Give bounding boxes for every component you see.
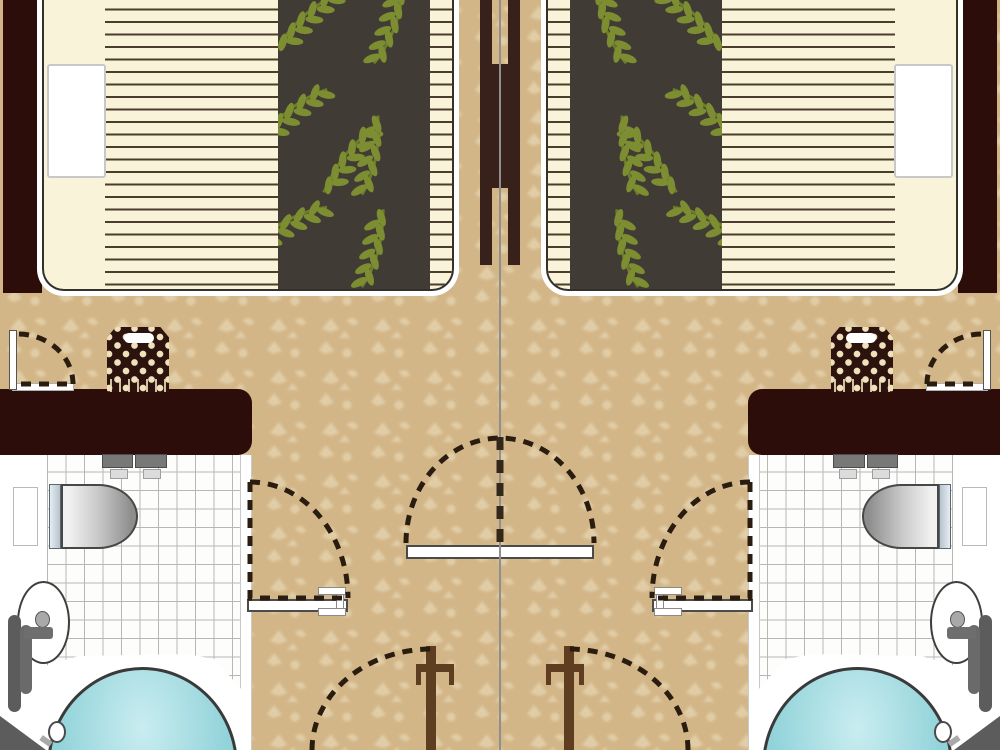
corner-shelf	[0, 716, 46, 750]
coat-stand-arm	[416, 664, 454, 672]
door-handle	[654, 608, 682, 616]
coat-stand-hook	[449, 672, 454, 685]
door-handle	[318, 608, 346, 616]
pillow	[47, 64, 106, 178]
vanity-fixture	[867, 454, 898, 468]
closet-door-leaf	[983, 330, 991, 390]
pillow	[894, 64, 953, 178]
ottoman-fringe	[107, 379, 169, 392]
vanity-fixture-small	[872, 469, 890, 479]
headboard-wall	[3, 0, 42, 293]
towel-bar	[979, 615, 992, 712]
partition-wall-pier	[480, 64, 499, 188]
coat-stand	[564, 646, 574, 750]
wall-shelf	[13, 487, 38, 546]
toilet-tank	[49, 484, 61, 549]
luggage-ottoman	[107, 327, 169, 392]
headboard-wall	[958, 0, 997, 293]
coat-stand-hook	[416, 672, 421, 685]
door-handle	[654, 587, 682, 595]
corner-shelf	[954, 716, 1000, 750]
bed-duvet-stripes-edge	[430, 0, 454, 289]
closet-wall	[748, 389, 1000, 455]
ottoman-fringe	[831, 379, 893, 392]
bed-duvet-stripes-edge	[546, 0, 570, 289]
bed-duvet-stripes	[105, 0, 278, 289]
bed-duvet-stripes	[722, 0, 895, 289]
bed	[546, 0, 958, 291]
coat-stand-arm	[546, 664, 584, 672]
wall-shelf	[962, 487, 987, 546]
faucet-spout	[947, 627, 976, 639]
ottoman-handle-slot	[846, 333, 876, 343]
closet-opening	[12, 383, 74, 391]
room-divider-wall-line-overlay	[499, 545, 501, 559]
vanity-fixture	[135, 454, 167, 468]
toilet-tank	[939, 484, 951, 549]
closet-wall	[0, 389, 252, 455]
faucet-knob	[35, 611, 50, 628]
partition-wall-pier	[501, 64, 520, 188]
coat-stand-hook	[546, 672, 551, 685]
faucet-knob	[950, 611, 965, 628]
vanity-fixture-small	[110, 469, 128, 479]
floor-plan	[0, 0, 1000, 750]
door-handle	[318, 587, 346, 595]
toilet-bowl	[862, 484, 939, 549]
vanity-fixture	[102, 454, 133, 468]
bed-runner-leaf-fabric	[278, 0, 430, 291]
room-left	[0, 0, 500, 750]
room-right	[500, 0, 1000, 750]
coat-stand-hook	[579, 672, 584, 685]
bed-runner-leaf-fabric	[570, 0, 722, 291]
vanity-fixture	[833, 454, 865, 468]
coat-stand	[426, 646, 436, 750]
faucet-spout	[24, 627, 53, 639]
vanity-fixture-small	[143, 469, 161, 479]
luggage-ottoman	[831, 327, 893, 392]
closet-opening	[926, 383, 988, 391]
closet-door-leaf	[9, 330, 17, 390]
vanity-fixture-small	[839, 469, 857, 479]
bed	[42, 0, 454, 291]
toilet-bowl	[61, 484, 138, 549]
ottoman-handle-slot	[124, 333, 154, 343]
